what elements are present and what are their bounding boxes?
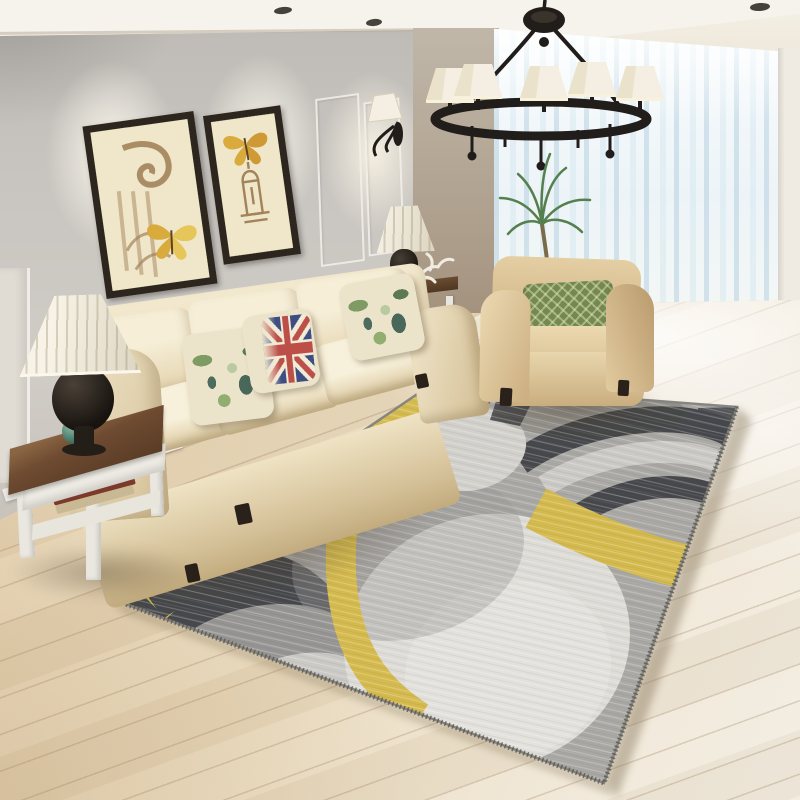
- armchair-foot: [500, 388, 513, 407]
- lamp-foot: [62, 443, 106, 456]
- sofa-foot: [415, 373, 430, 389]
- armchair-foot: [618, 380, 630, 397]
- armchair-arm: [479, 290, 531, 403]
- armchair-arm: [606, 284, 654, 392]
- floral-pillow: [337, 271, 426, 362]
- side-table-shadow: [10, 545, 195, 600]
- chandelier: [0, 0, 800, 220]
- union-jack-pillow: [240, 307, 321, 395]
- union-jack-print: [261, 314, 317, 386]
- living-room-photo: [0, 0, 800, 800]
- lamp-base: [52, 366, 114, 432]
